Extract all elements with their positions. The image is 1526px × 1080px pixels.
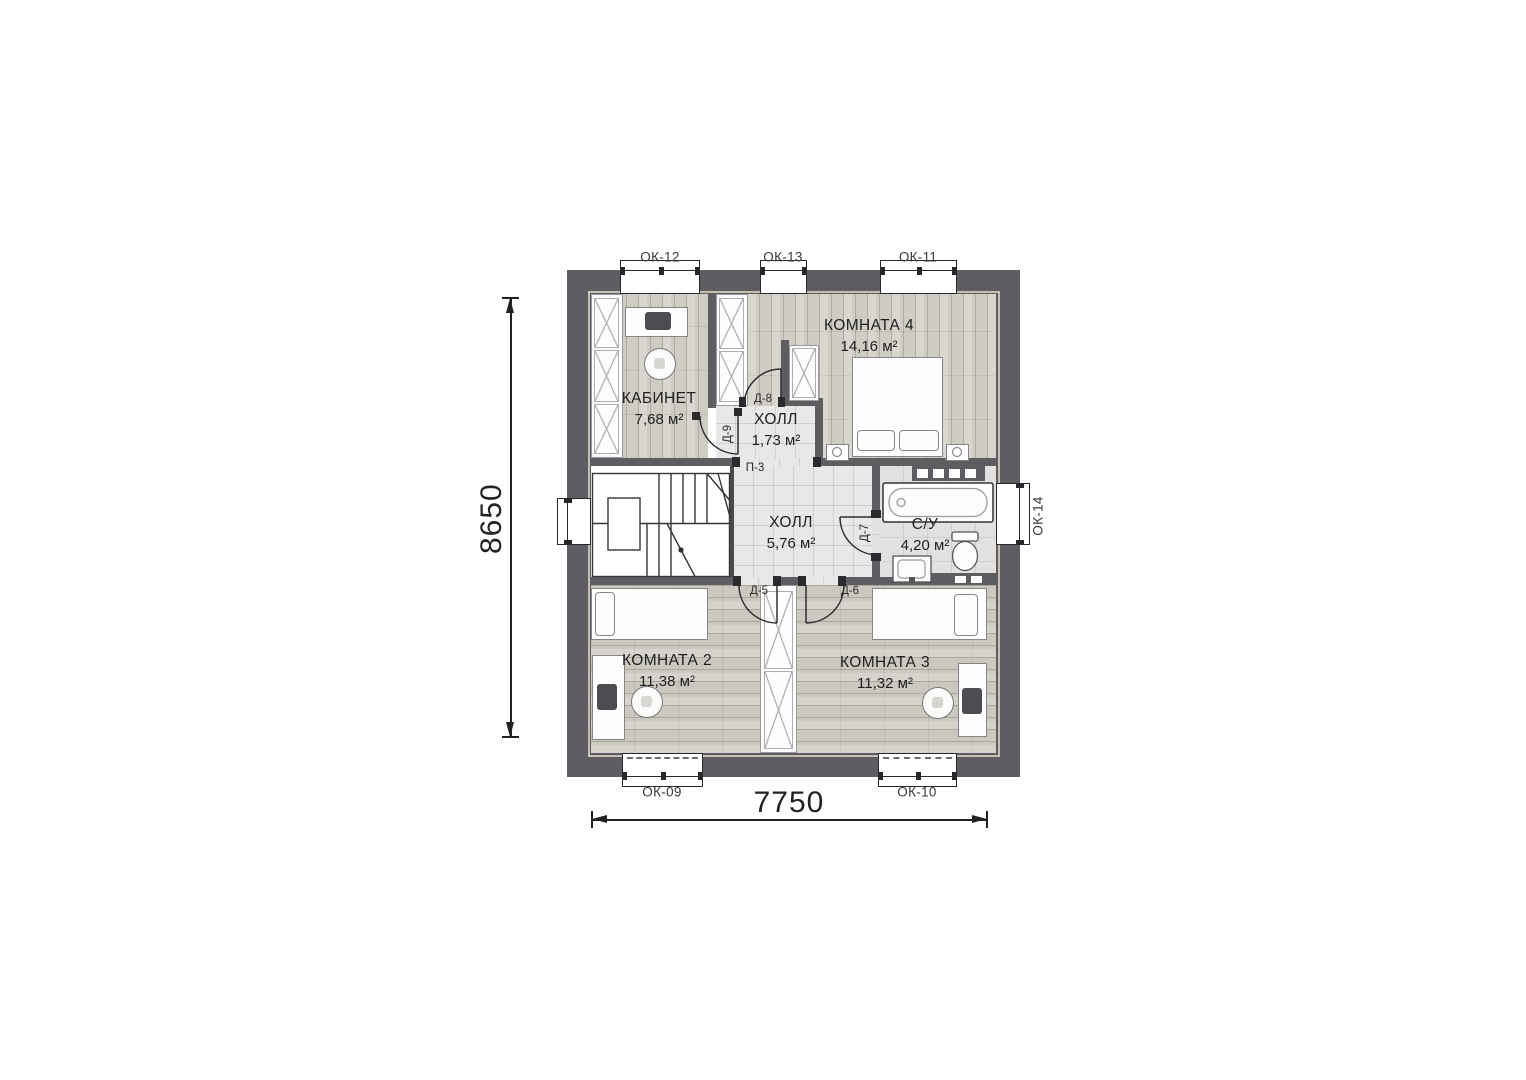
window-tick	[916, 772, 921, 780]
room-area: 14,16 м²	[824, 336, 914, 357]
window-tick	[564, 540, 572, 545]
window-tick	[695, 267, 700, 275]
door-jamb	[871, 553, 881, 561]
window-ok10-icon	[878, 753, 957, 787]
room-area: 5,76 м²	[767, 533, 816, 554]
room-name: КАБИНЕТ	[622, 388, 696, 409]
arrow-right-icon	[972, 815, 987, 823]
lamp-icon	[833, 448, 842, 457]
room-label-room3: КОМНАТА 3 11,32 м²	[840, 652, 930, 694]
door-jamb	[798, 576, 806, 586]
window-ok14-icon	[996, 483, 1030, 545]
window-ok09-icon	[622, 753, 703, 787]
arrow-left-icon	[592, 815, 607, 823]
window-tick	[878, 772, 883, 780]
window-label-ok11: ОК-11	[899, 250, 937, 265]
lamp-icon	[953, 448, 962, 457]
toilet-icon	[953, 542, 978, 571]
opening-label-p3: П-3	[746, 462, 765, 474]
floor-plan-page: КАБИНЕТ 7,68 м² ХОЛЛ 1,73 м² КОМНАТА 4 1…	[0, 0, 1526, 1080]
window-tick	[802, 267, 807, 275]
window-tick	[661, 772, 666, 780]
arrow-down-icon	[506, 722, 514, 737]
room-label-room2: КОМНАТА 2 11,38 м²	[622, 650, 712, 692]
window-tick	[880, 267, 885, 275]
window-tick	[952, 772, 957, 780]
dimension-height-value: 8650	[475, 484, 509, 554]
door-label-d9: Д-9	[722, 425, 734, 443]
window-label-ok09: ОК-09	[642, 785, 681, 800]
room-name: С/У	[901, 514, 950, 535]
room-name: КОМНАТА 4	[824, 315, 914, 336]
window-sill-dash	[627, 757, 698, 759]
floor-plan: КАБИНЕТ 7,68 м² ХОЛЛ 1,73 м² КОМНАТА 4 1…	[567, 270, 1020, 777]
window-tick	[1016, 540, 1024, 545]
staircase-icon	[593, 474, 730, 577]
room-label-office: КАБИНЕТ 7,68 м²	[622, 388, 696, 430]
window-ok12-icon	[620, 260, 700, 294]
room-area: 11,38 м²	[622, 671, 712, 692]
room-name: КОМНАТА 2	[622, 650, 712, 671]
window-tick	[659, 267, 664, 275]
room-area: 4,20 м²	[901, 535, 950, 556]
window-tick	[620, 267, 625, 275]
room-name: ХОЛЛ	[752, 409, 801, 430]
door-label-d5: Д-5	[750, 585, 768, 597]
door-label-d8: Д-8	[754, 393, 772, 405]
window-sill-dash	[883, 757, 952, 759]
room-name: КОМНАТА 3	[840, 652, 930, 673]
window-label-ok12: ОК-12	[640, 250, 679, 265]
window-left-icon	[557, 498, 591, 545]
dimension-width-value: 7750	[739, 786, 839, 820]
toilet-tank-icon	[952, 532, 978, 541]
window-tick	[917, 267, 922, 275]
opening-jamb	[813, 457, 821, 467]
room-label-room4: КОМНАТА 4 14,16 м²	[824, 315, 914, 357]
room-area: 1,73 м²	[752, 430, 801, 451]
room-label-hall: ХОЛЛ 5,76 м²	[767, 512, 816, 554]
window-ok13-icon	[760, 260, 807, 294]
window-tick	[622, 772, 627, 780]
window-tick	[564, 498, 572, 503]
door-jamb	[733, 576, 741, 586]
window-label-ok10: ОК-10	[897, 785, 936, 800]
door-d6-arc	[806, 585, 844, 623]
door-jamb	[871, 510, 881, 518]
door-jamb	[778, 397, 785, 407]
window-label-ok14: ОК-14	[1031, 496, 1046, 535]
dimension-line	[510, 298, 512, 737]
arrow-up-icon	[506, 298, 514, 313]
opening-jamb	[732, 457, 740, 467]
faucet-icon	[909, 577, 915, 582]
window-ok11-icon	[880, 260, 957, 294]
window-glass-line	[567, 499, 568, 544]
door-jamb	[773, 576, 781, 586]
door-jamb	[734, 408, 742, 416]
window-tick	[760, 267, 765, 275]
room-label-small-hall: ХОЛЛ 1,73 м²	[752, 409, 801, 451]
room-name: ХОЛЛ	[767, 512, 816, 533]
door-label-d6: Д-6	[841, 585, 859, 597]
window-glass-line	[761, 270, 806, 271]
door-jamb	[739, 397, 746, 407]
window-tick	[1016, 483, 1024, 488]
door-label-d7: Д-7	[859, 524, 871, 542]
window-label-ok13: ОК-13	[763, 250, 802, 265]
window-tick	[952, 267, 957, 275]
window-glass-line	[1019, 484, 1020, 544]
room-area: 11,32 м²	[840, 673, 930, 694]
room-label-bathroom: С/У 4,20 м²	[901, 514, 950, 556]
room-area: 7,68 м²	[622, 409, 696, 430]
window-tick	[698, 772, 703, 780]
